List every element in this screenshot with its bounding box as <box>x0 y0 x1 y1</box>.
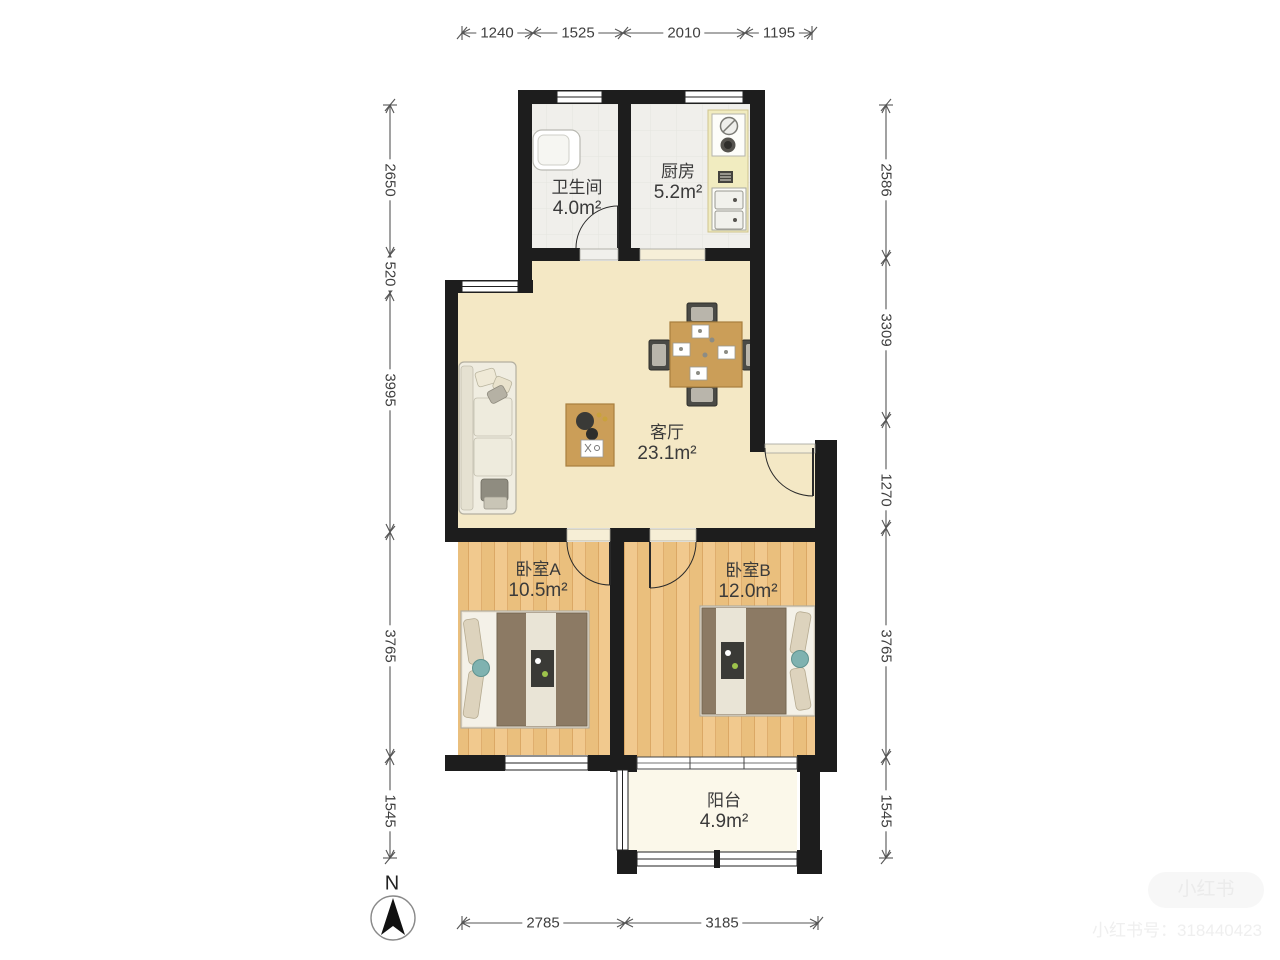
floorplan-page: 1240 1525 2010 1195 2785 3185 2650 520 3… <box>0 0 1280 960</box>
sofa <box>459 362 516 514</box>
room-name: 卧室A <box>508 560 567 580</box>
room-area: 12.0m² <box>718 581 777 603</box>
room-area: 4.9m² <box>700 811 749 833</box>
room-name: 卧室B <box>718 561 777 581</box>
room-name: 厨房 <box>654 162 703 182</box>
dim-bottom-1: 2785 <box>522 915 563 932</box>
dim-bottom-2: 3185 <box>701 915 742 932</box>
dim-right-4: 3765 <box>878 625 895 666</box>
dim-top-3: 2010 <box>663 25 704 42</box>
room-name: 阳台 <box>700 791 749 811</box>
floorplan-svg <box>0 0 1280 960</box>
room-label-bedroom-a: 卧室A 10.5m² <box>508 560 567 602</box>
dim-left-4: 3765 <box>382 625 399 666</box>
room-area: 5.2m² <box>654 182 703 204</box>
room-label-balcony: 阳台 4.9m² <box>700 791 749 833</box>
bed-b <box>700 606 815 716</box>
dim-left-2: 520 <box>382 257 399 290</box>
dim-top-1: 1240 <box>476 25 517 42</box>
dim-right-2: 3309 <box>878 309 895 350</box>
bathtub <box>533 130 580 170</box>
room-label-bathroom: 卫生间 4.0m² <box>552 178 603 220</box>
bed-a <box>461 611 589 728</box>
north-arrow-icon <box>371 896 415 940</box>
dim-top-4: 1195 <box>759 25 799 42</box>
dim-right-1: 2586 <box>878 159 895 200</box>
room-label-bedroom-b: 卧室B 12.0m² <box>718 561 777 603</box>
coffee-table <box>566 404 614 466</box>
room-area: 23.1m² <box>637 443 696 465</box>
dim-right-5: 1545 <box>878 790 895 831</box>
room-name: 客厅 <box>637 423 696 443</box>
watermark-badge: 小红书 <box>1148 872 1264 908</box>
compass-north-label: N <box>385 873 399 896</box>
kitchen-counter <box>708 110 748 232</box>
dim-top-2: 1525 <box>557 25 598 42</box>
watermark-account: 小红书号：318440423 <box>1092 916 1262 941</box>
dim-left-1: 2650 <box>382 159 399 200</box>
room-area: 4.0m² <box>552 198 603 220</box>
room-area: 10.5m² <box>508 580 567 602</box>
dim-left-3: 3995 <box>382 369 399 410</box>
dim-left-5: 1545 <box>382 790 399 831</box>
room-name: 卫生间 <box>552 178 603 198</box>
room-label-kitchen: 厨房 5.2m² <box>654 162 703 204</box>
dim-right-3: 1270 <box>878 469 895 510</box>
room-label-living-room: 客厅 23.1m² <box>637 423 696 465</box>
